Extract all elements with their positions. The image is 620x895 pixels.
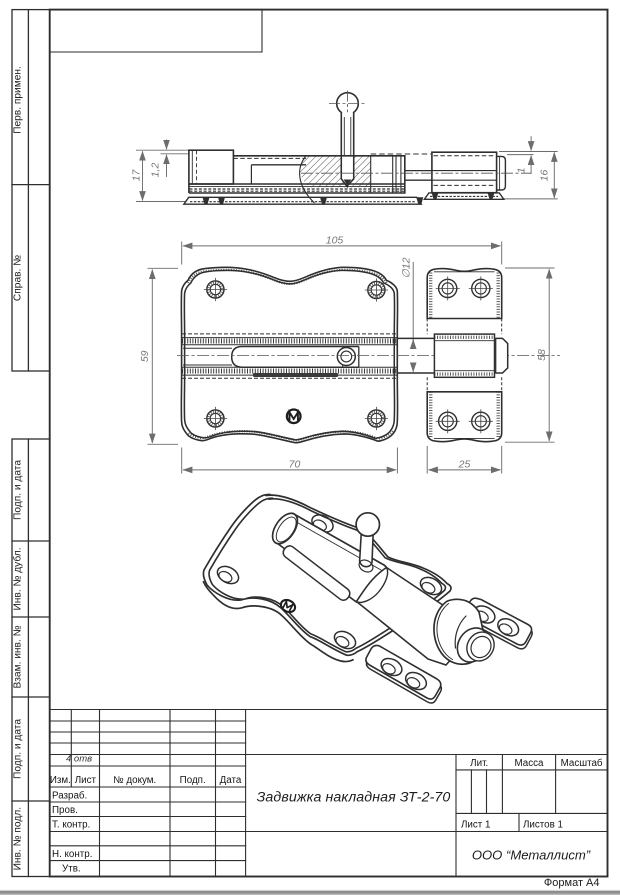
svg-text:Инв. № подл.: Инв. № подл. <box>13 807 24 870</box>
svg-text:Масса: Масса <box>515 758 545 769</box>
svg-text:70: 70 <box>289 458 301 470</box>
svg-text:16: 16 <box>539 170 551 182</box>
svg-text:№ докум.: № докум. <box>113 775 156 786</box>
svg-text:Дата: Дата <box>220 775 242 786</box>
svg-text:ООО “Металлист”: ООО “Металлист” <box>472 848 591 863</box>
svg-text:4 отв: 4 отв <box>66 754 92 765</box>
svg-text:Подп.: Подп. <box>180 775 206 786</box>
svg-text:Лист: Лист <box>75 775 97 786</box>
svg-text:1: 1 <box>516 168 528 174</box>
svg-text:Разраб.: Разраб. <box>52 791 87 802</box>
svg-text:59: 59 <box>139 350 151 362</box>
svg-text:Пров.: Пров. <box>52 805 78 816</box>
svg-text:Изм.: Изм. <box>50 775 71 786</box>
svg-text:Н. контр.: Н. контр. <box>52 849 92 860</box>
svg-text:Лит.: Лит. <box>470 758 488 769</box>
svg-text:Инв. № дубл.: Инв. № дубл. <box>12 547 24 610</box>
svg-text:Т. контр.: Т. контр. <box>52 820 90 831</box>
svg-text:Перв. примен.: Перв. примен. <box>13 66 24 134</box>
svg-text:Взам. инв. №: Взам. инв. № <box>13 625 24 688</box>
svg-text:1,2: 1,2 <box>150 163 162 178</box>
svg-text:Листов 1: Листов 1 <box>523 820 563 831</box>
svg-text:∅12: ∅12 <box>401 257 413 278</box>
svg-text:Подп. и дата: Подп. и дата <box>13 460 24 520</box>
svg-text:25: 25 <box>458 458 471 470</box>
svg-text:Задвижка накладная ЗТ-2-70: Задвижка накладная ЗТ-2-70 <box>257 790 451 806</box>
svg-text:Масштаб: Масштаб <box>561 758 603 769</box>
svg-text:Подп. и дата: Подп. и дата <box>13 719 24 779</box>
svg-text:Справ. №: Справ. № <box>13 255 24 301</box>
svg-text:58: 58 <box>536 349 548 361</box>
svg-text:Утв.: Утв. <box>62 864 81 875</box>
svg-text:Лист 1: Лист 1 <box>461 820 490 831</box>
svg-text:Формат А4: Формат А4 <box>544 877 600 889</box>
svg-text:105: 105 <box>326 234 344 246</box>
svg-text:17: 17 <box>131 169 143 182</box>
